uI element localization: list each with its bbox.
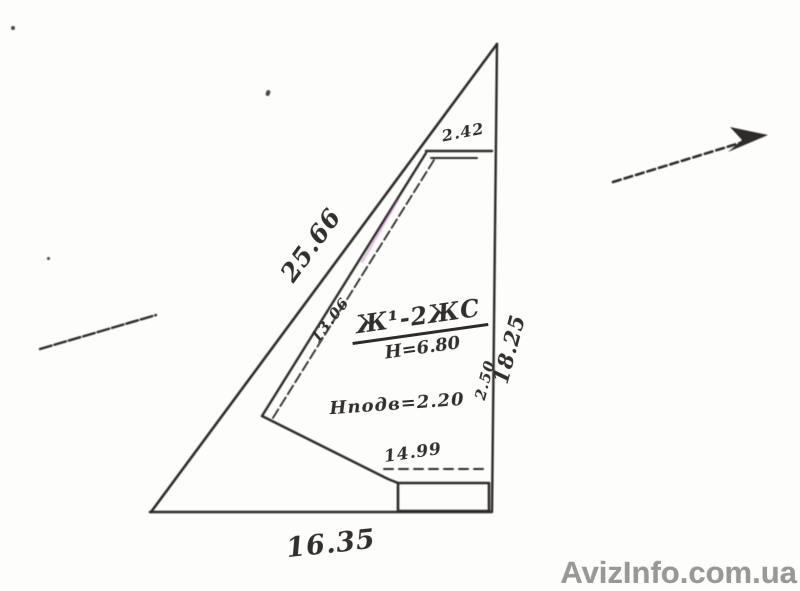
scan-speck bbox=[47, 257, 50, 260]
plan-drawing bbox=[0, 0, 800, 591]
pen-tint-line bbox=[362, 200, 398, 262]
scan-speck bbox=[11, 26, 15, 30]
watermark: AvizInfo.com.ua bbox=[560, 555, 797, 591]
plot-boundary bbox=[150, 44, 497, 512]
north-arrow-icon bbox=[613, 127, 768, 182]
boundary-line-left bbox=[40, 315, 156, 349]
scanned-survey-plan: 25.66 18.25 16.35 2.42 2.50 13.06 14.99 … bbox=[0, 0, 800, 591]
